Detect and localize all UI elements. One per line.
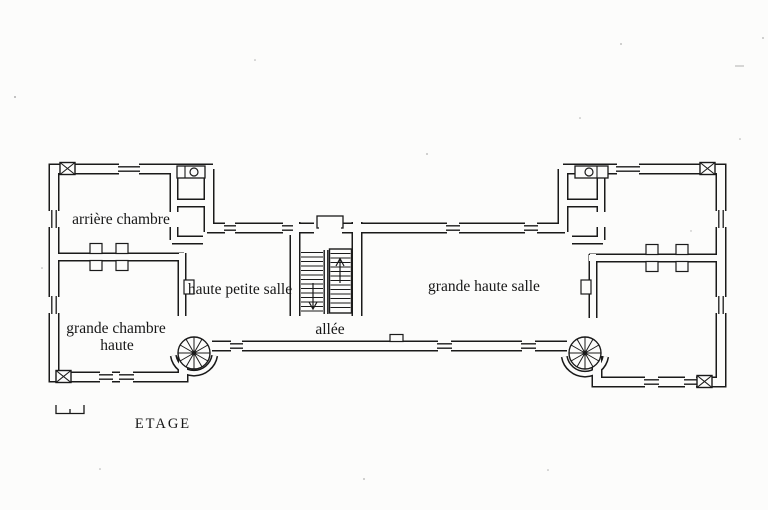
corner-block-sw (56, 371, 71, 383)
label-grande-chambre-haute-line1: grande chambre (66, 320, 166, 337)
latrine-left (177, 166, 205, 178)
label-allee: allée (315, 321, 344, 338)
corner-block-ne (700, 163, 715, 175)
floor-plan-drawing: arrière chambre haute petite salle grand… (0, 0, 768, 510)
label-grande-chambre-haute-line2: haute (100, 337, 134, 354)
corner-block-nw (60, 163, 75, 175)
label-arriere-chambre: arrière chambre (72, 211, 170, 228)
label-grande-haute-salle: grande haute salle (428, 278, 540, 295)
corner-block-se (697, 376, 712, 388)
latrine-right (575, 166, 608, 178)
floor-plan-page: arrière chambre haute petite salle grand… (0, 0, 768, 510)
newel-post-right (583, 351, 588, 356)
plan-caption: ETAGE (135, 416, 191, 432)
spiral-staircase-left (178, 337, 210, 369)
label-haute-petite-salle: haute petite salle (188, 281, 292, 298)
spiral-staircase-right (569, 337, 601, 369)
newel-post-left (192, 351, 197, 356)
allee-door-jamb (390, 335, 403, 342)
stair-portal (317, 216, 343, 228)
